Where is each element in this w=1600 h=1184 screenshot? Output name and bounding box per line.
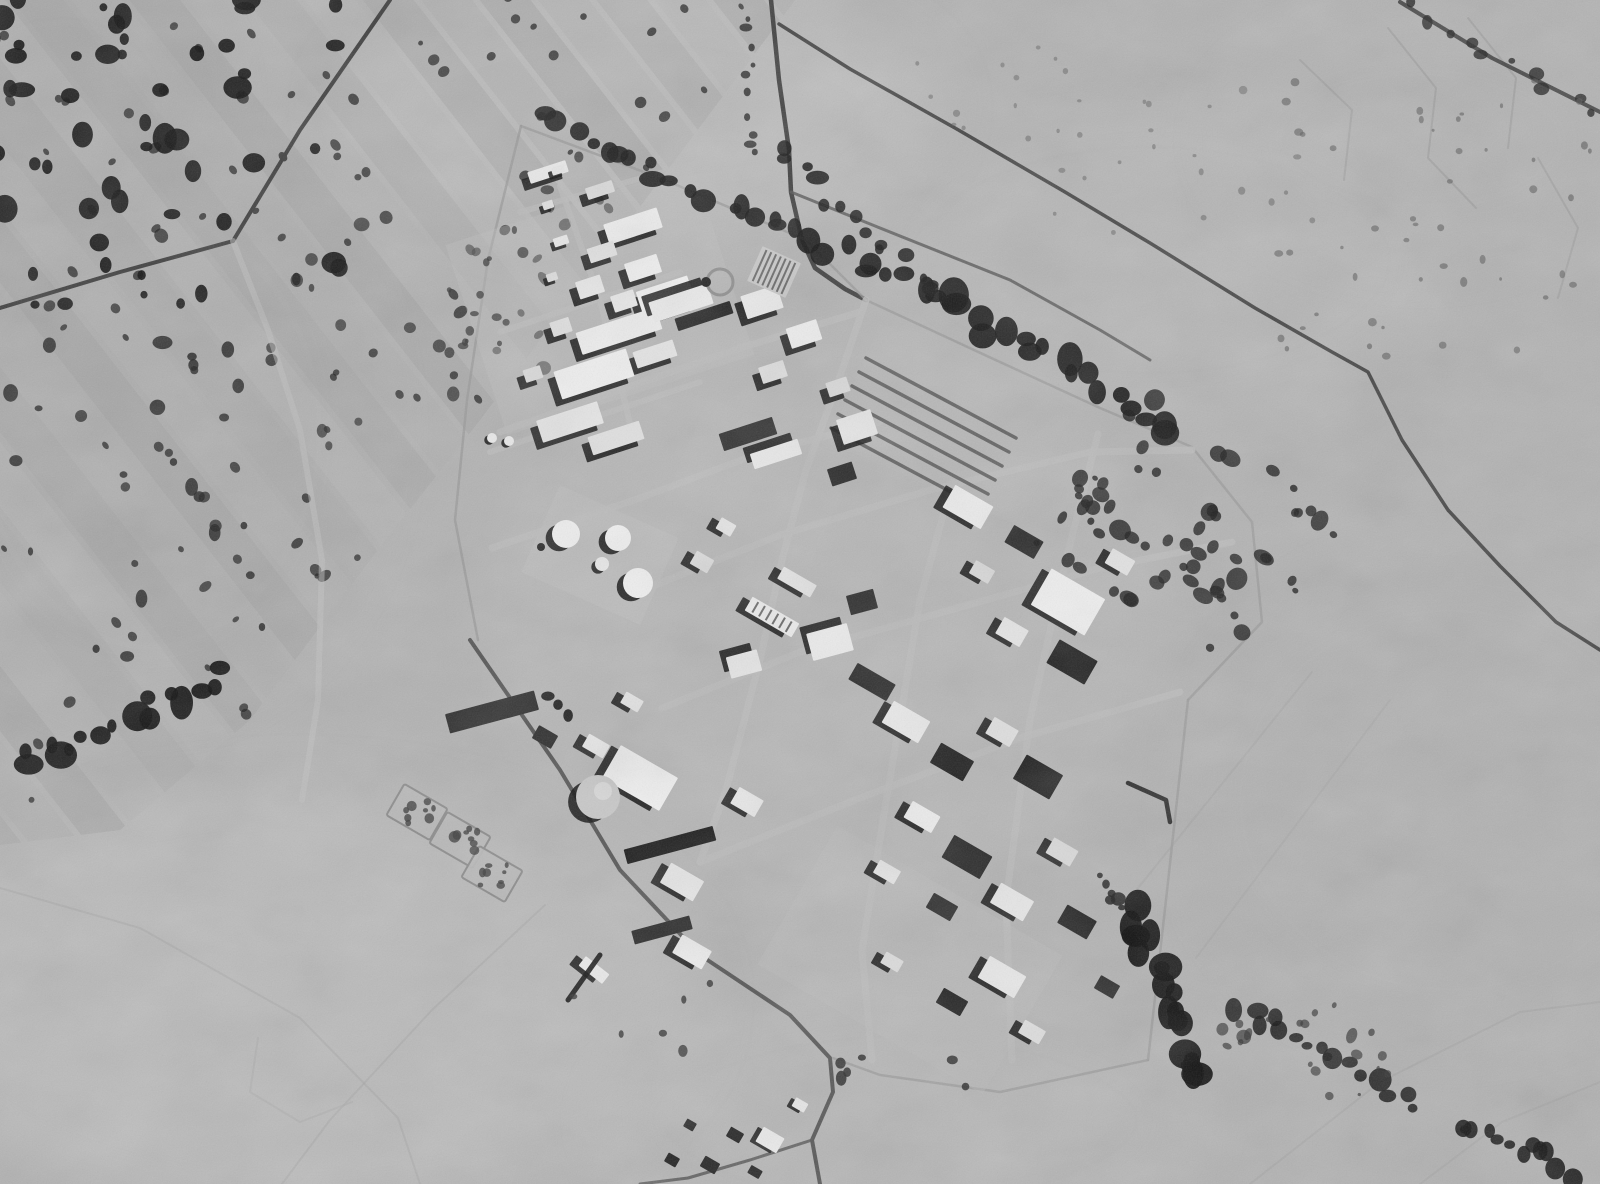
film-grain xyxy=(0,0,1600,1184)
satellite-image xyxy=(0,0,1600,1184)
screenshot-root xyxy=(0,0,1600,1184)
